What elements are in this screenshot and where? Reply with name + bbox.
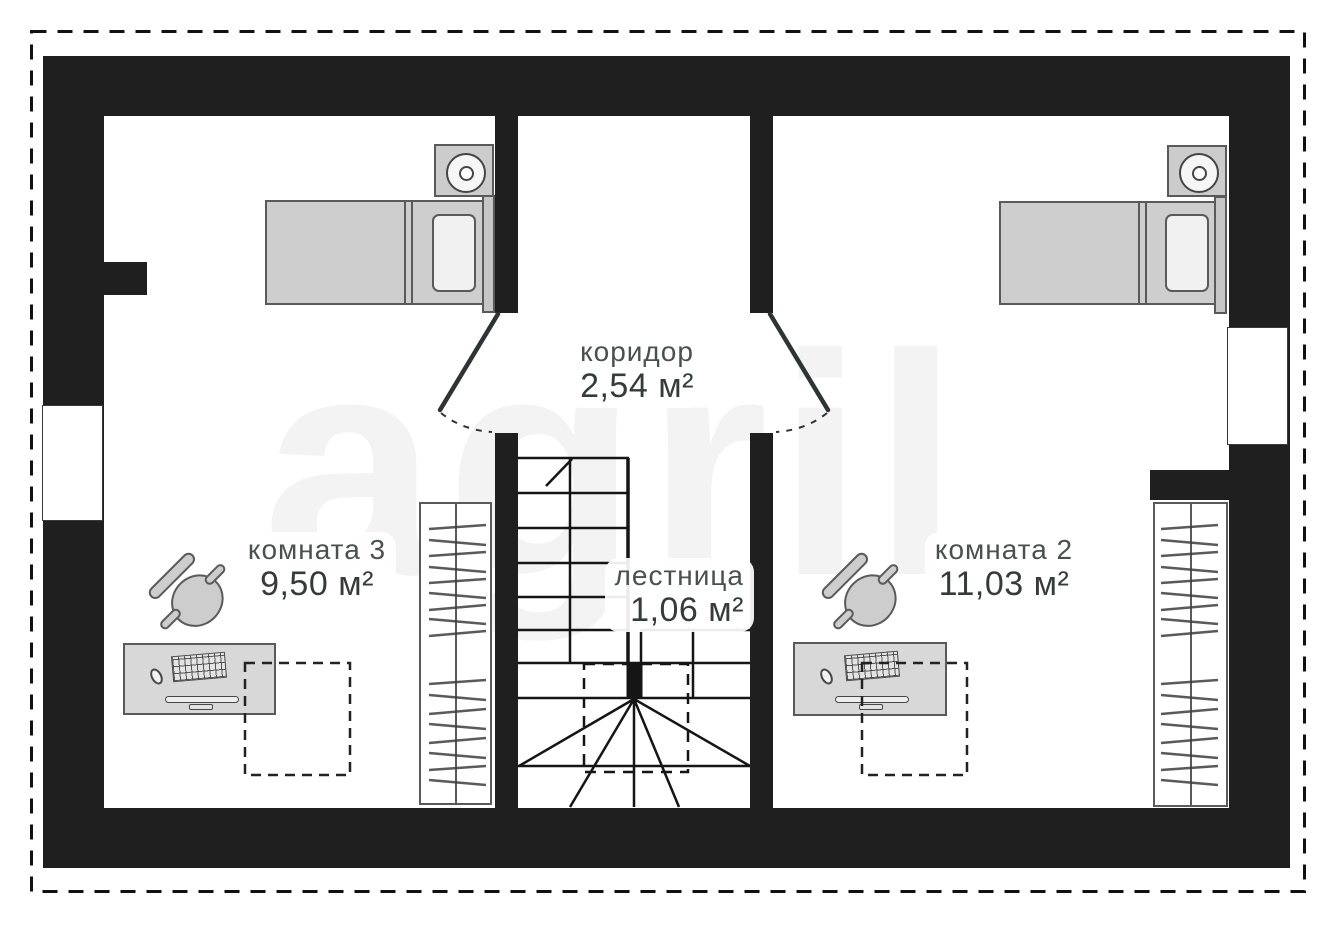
monitor-base-room3 (189, 704, 213, 710)
bed-pillow-room3 (432, 214, 476, 292)
monitor-room2 (835, 696, 909, 703)
room-name: коридор (580, 336, 694, 368)
monitor-base-room2 (859, 704, 883, 710)
room-name: комната 2 (935, 534, 1073, 566)
nightstand-room3 (434, 144, 494, 197)
lamp-center-room2 (1192, 166, 1207, 181)
label-corridor: коридор 2,54 м² (570, 334, 704, 408)
room-name: лестница (615, 560, 744, 592)
window-right-wall (1227, 327, 1288, 445)
label-room3: комната 3 9,50 м² (238, 532, 396, 606)
label-room2: комната 2 11,03 м² (925, 532, 1083, 606)
wall-stub-right (1150, 470, 1229, 500)
window-left-wall (42, 405, 103, 521)
bed-headboard-room2 (1214, 196, 1227, 314)
bed-divider-room2 (1138, 203, 1147, 303)
room-area: 1,06 м² (630, 592, 744, 629)
label-stairs: лестница 1,06 м² (605, 558, 754, 632)
corridor-wall-upper-right (750, 116, 773, 313)
room-area: 9,50 м² (260, 566, 374, 603)
lamp-icon-room2 (1179, 153, 1219, 193)
room-area: 11,03 м² (939, 566, 1070, 603)
wardrobe-room3 (419, 502, 492, 805)
lamp-center-room3 (459, 166, 474, 181)
wardrobe-rail-room3 (455, 504, 457, 803)
monitor-room3 (165, 696, 239, 703)
bed-divider-room3 (404, 202, 413, 303)
room-name: комната 3 (248, 534, 386, 566)
wardrobe-room2 (1153, 502, 1228, 807)
floor-plan: agril (0, 0, 1336, 925)
wardrobe-rail-room2 (1190, 504, 1192, 805)
wall-stub-left (104, 262, 147, 295)
bed-pillow-room2 (1165, 214, 1209, 292)
bed-headboard-room3 (482, 195, 495, 313)
lamp-icon-room3 (446, 153, 486, 193)
keyboard-room3 (171, 652, 227, 683)
corridor-wall-lower-left (495, 433, 518, 808)
nightstand-room2 (1167, 145, 1227, 197)
keyboard-room2 (844, 651, 900, 682)
corridor-wall-upper-left (495, 116, 518, 313)
room-area: 2,54 м² (580, 368, 694, 405)
